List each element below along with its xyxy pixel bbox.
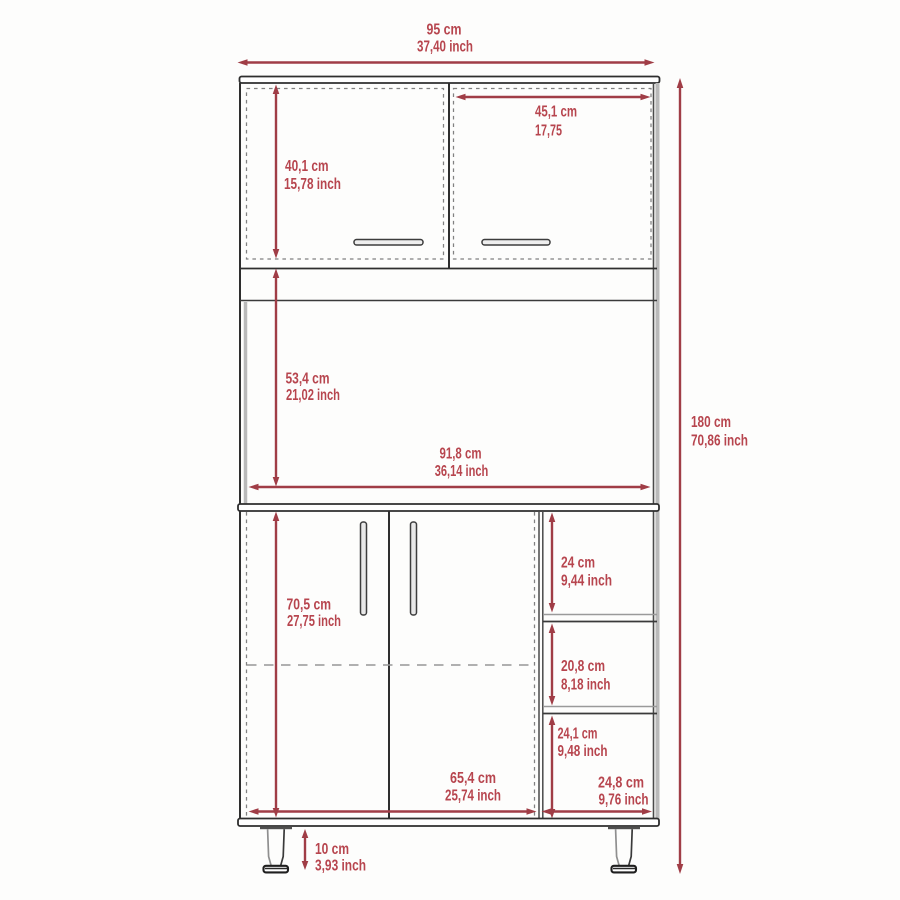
svg-text:17,75: 17,75 (535, 123, 562, 140)
svg-text:36,14 inch: 36,14 inch (435, 463, 489, 480)
svg-text:24,1 cm: 24,1 cm (558, 726, 598, 743)
svg-text:9,44 inch: 9,44 inch (561, 573, 612, 590)
svg-text:25,74 inch: 25,74 inch (445, 788, 501, 805)
svg-text:53,4 cm: 53,4 cm (286, 371, 330, 388)
svg-text:27,75 inch: 27,75 inch (287, 613, 341, 630)
svg-text:180 cm: 180 cm (691, 414, 731, 431)
svg-text:20,8 cm: 20,8 cm (561, 658, 605, 675)
svg-text:70,86 inch: 70,86 inch (691, 433, 748, 450)
svg-text:45,1 cm: 45,1 cm (535, 104, 577, 121)
svg-text:91,8 cm: 91,8 cm (440, 446, 482, 463)
svg-text:9,76 inch: 9,76 inch (599, 792, 649, 809)
svg-text:95 cm: 95 cm (427, 22, 462, 39)
svg-text:9,48 inch: 9,48 inch (558, 743, 608, 760)
svg-text:10 cm: 10 cm (315, 841, 349, 858)
svg-text:24 cm: 24 cm (561, 555, 595, 572)
svg-text:24,8 cm: 24,8 cm (598, 775, 644, 792)
svg-text:37,40 inch: 37,40 inch (417, 39, 473, 56)
svg-text:65,4 cm: 65,4 cm (450, 770, 496, 787)
svg-text:15,78 inch: 15,78 inch (284, 176, 341, 193)
svg-text:21,02 inch: 21,02 inch (286, 387, 340, 404)
svg-text:3,93 inch: 3,93 inch (315, 858, 366, 875)
svg-text:40,1 cm: 40,1 cm (285, 158, 329, 175)
svg-text:70,5 cm: 70,5 cm (287, 597, 332, 614)
svg-text:8,18 inch: 8,18 inch (561, 677, 611, 694)
